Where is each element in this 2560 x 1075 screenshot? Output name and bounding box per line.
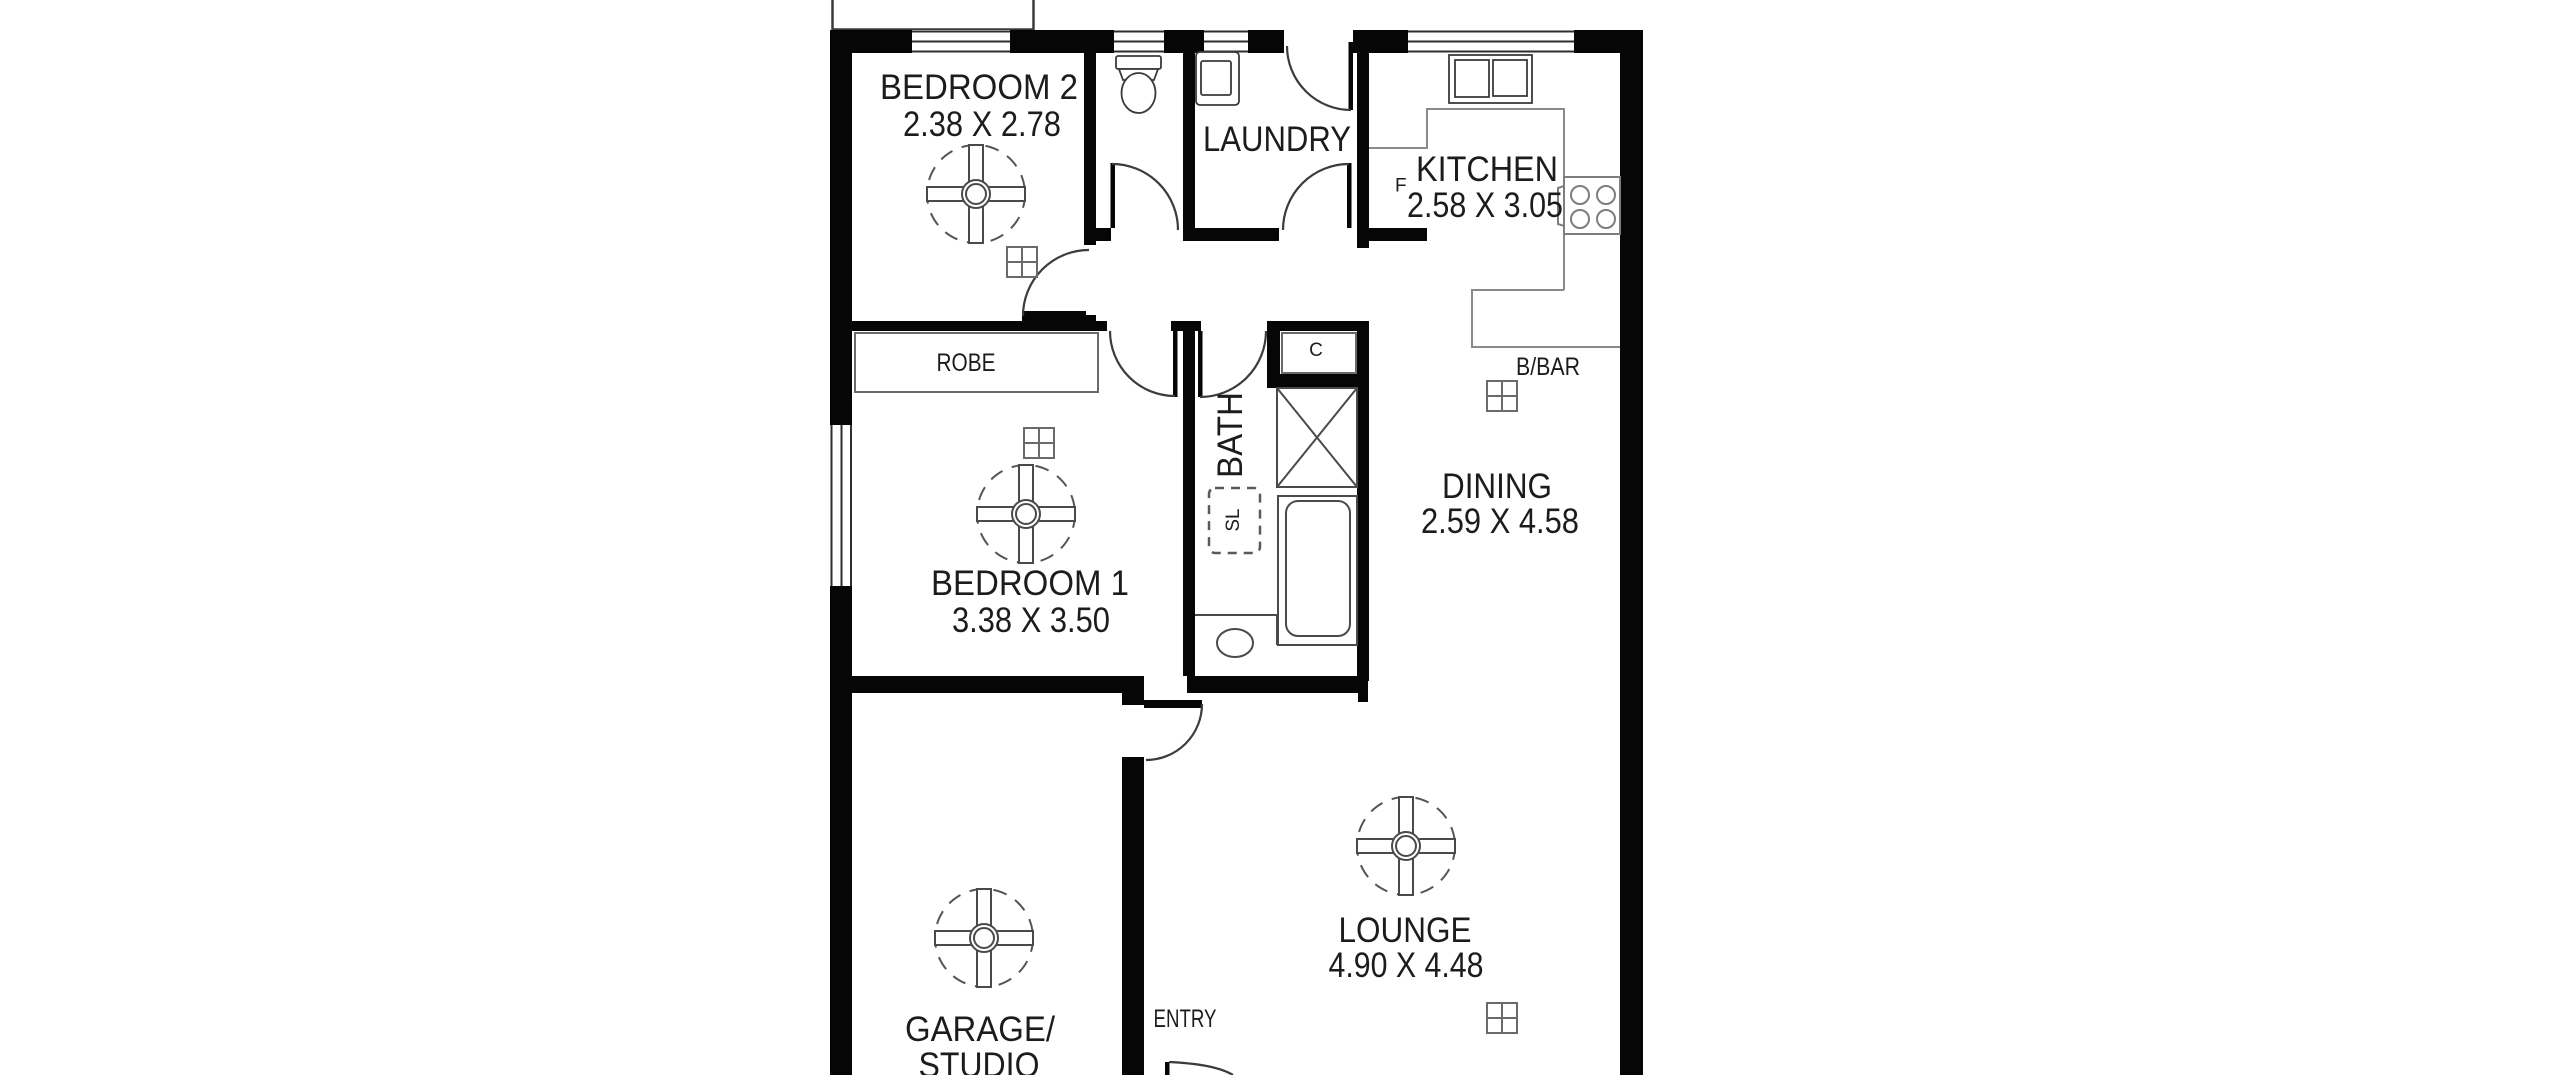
svg-text:LOUNGE: LOUNGE [1339,911,1472,950]
svg-text:STUDIO: STUDIO [919,1046,1040,1075]
svg-text:BATH: BATH [1211,392,1250,478]
svg-text:4.90 X 4.48: 4.90 X 4.48 [1329,946,1484,985]
svg-text:C: C [1309,340,1323,361]
svg-text:2.59 X 4.58: 2.59 X 4.58 [1421,502,1579,541]
svg-text:2.38 X 2.78: 2.38 X 2.78 [903,105,1061,144]
svg-text:F: F [1395,176,1407,197]
svg-text:BEDROOM 2: BEDROOM 2 [880,68,1078,107]
svg-text:DINING: DINING [1442,467,1552,506]
svg-text:2.58 X 3.05: 2.58 X 3.05 [1407,186,1563,225]
svg-text:B/BAR: B/BAR [1516,353,1580,381]
svg-text:SL: SL [1223,508,1244,531]
svg-text:KITCHEN: KITCHEN [1416,150,1558,189]
svg-text:GARAGE/: GARAGE/ [905,1010,1055,1049]
svg-text:ROBE: ROBE [937,349,996,377]
svg-text:BEDROOM 1: BEDROOM 1 [931,564,1129,603]
svg-text:ENTRY: ENTRY [1154,1005,1217,1033]
svg-text:3.38 X 3.50: 3.38 X 3.50 [952,601,1110,640]
svg-text:LAUNDRY: LAUNDRY [1203,120,1351,159]
